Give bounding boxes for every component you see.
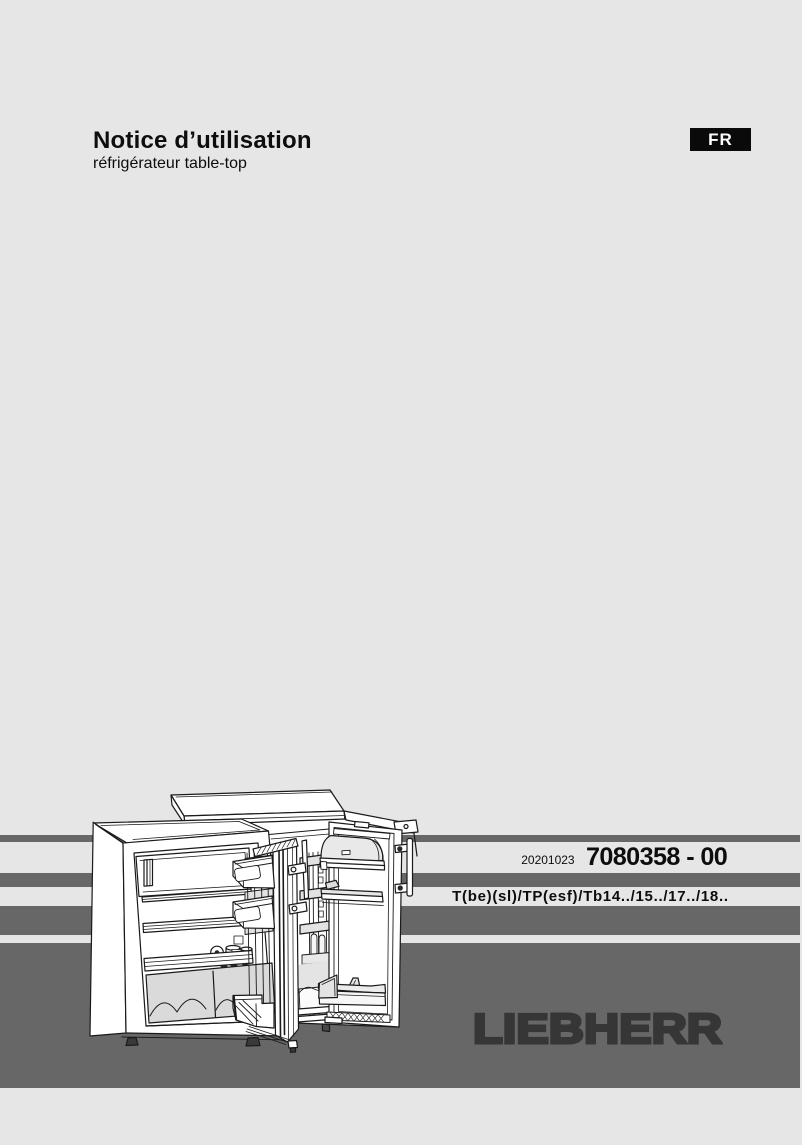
- svg-text:LIEBHERR: LIEBHERR: [473, 1008, 722, 1048]
